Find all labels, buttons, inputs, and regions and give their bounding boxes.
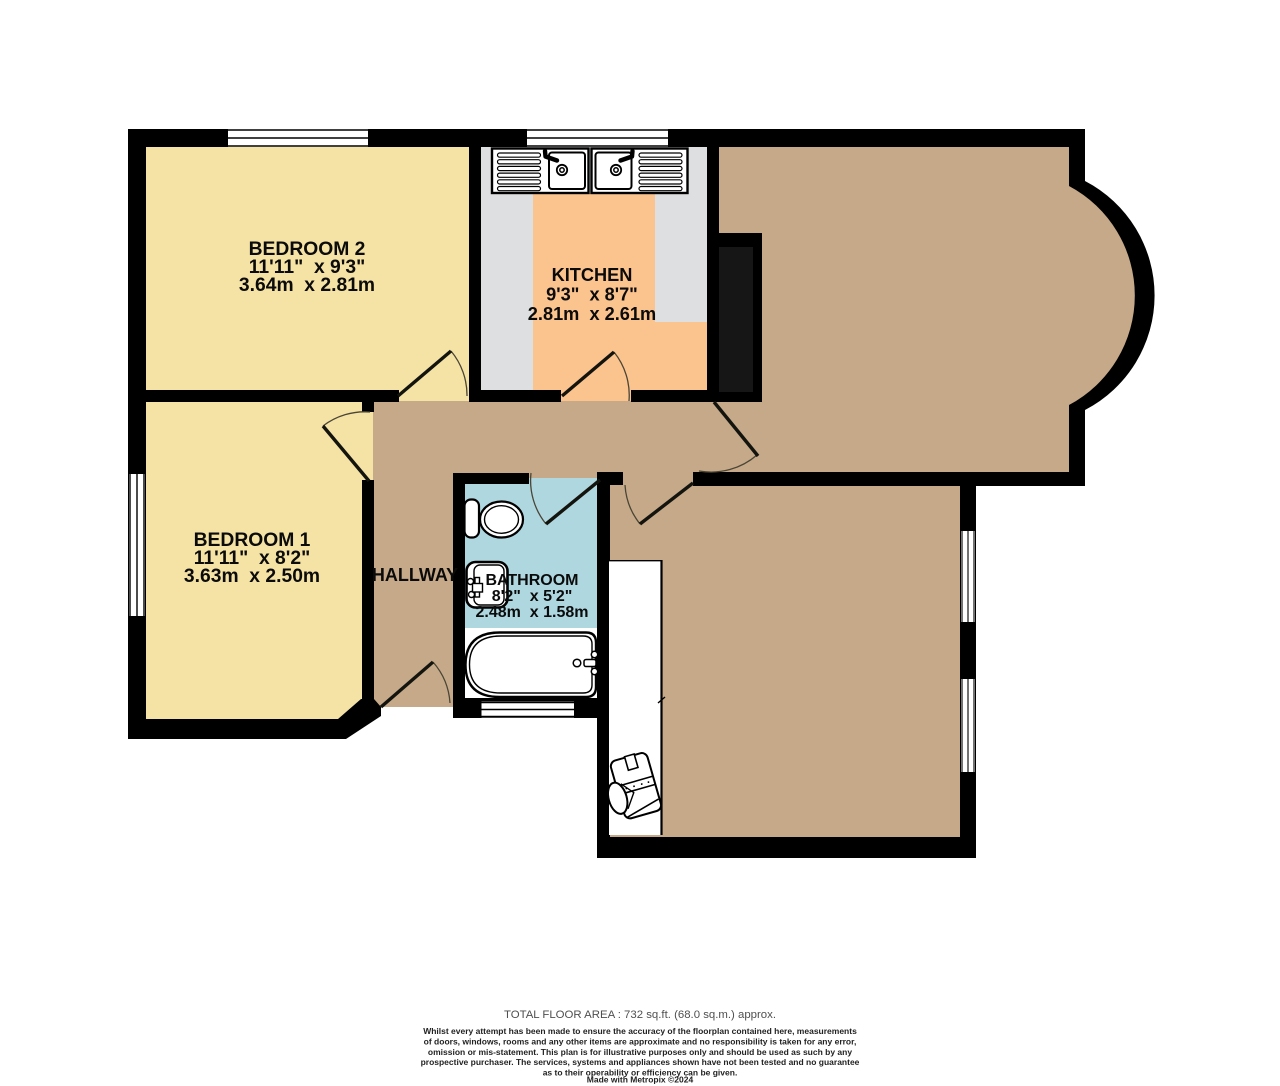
svg-text:prospective purchaser. The ser: prospective purchaser. The services, sys… (421, 1057, 860, 1067)
svg-text:2.81m x 2.61m: 2.81m x 2.61m (528, 304, 656, 324)
svg-text:3.64m x 2.81m: 3.64m x 2.81m (239, 275, 375, 296)
svg-text:KITCHEN: KITCHEN (552, 265, 633, 285)
svg-text:8'2" x 5'2": 8'2" x 5'2" (492, 588, 573, 605)
svg-text:BATHROOM: BATHROOM (485, 572, 578, 589)
svg-text:Whilst every attempt has been: Whilst every attempt has been made to en… (423, 1026, 857, 1036)
svg-text:omission or mis-statement. Thi: omission or mis-statement. This plan is … (428, 1047, 852, 1057)
svg-text:of doors, windows, rooms and a: of doors, windows, rooms and any other i… (424, 1036, 857, 1046)
svg-text:9'3" x 8'7": 9'3" x 8'7" (546, 285, 638, 305)
svg-text:3.63m x 2.50m: 3.63m x 2.50m (184, 566, 320, 587)
svg-text:Made with Metropix ©2024: Made with Metropix ©2024 (587, 1075, 694, 1085)
svg-text:HALLWAY: HALLWAY (372, 565, 458, 585)
svg-text:2.48m x 1.58m: 2.48m x 1.58m (476, 604, 589, 621)
svg-text:TOTAL FLOOR AREA : 732 sq.ft.: TOTAL FLOOR AREA : 732 sq.ft. (68.0 sq.m… (504, 1009, 776, 1021)
